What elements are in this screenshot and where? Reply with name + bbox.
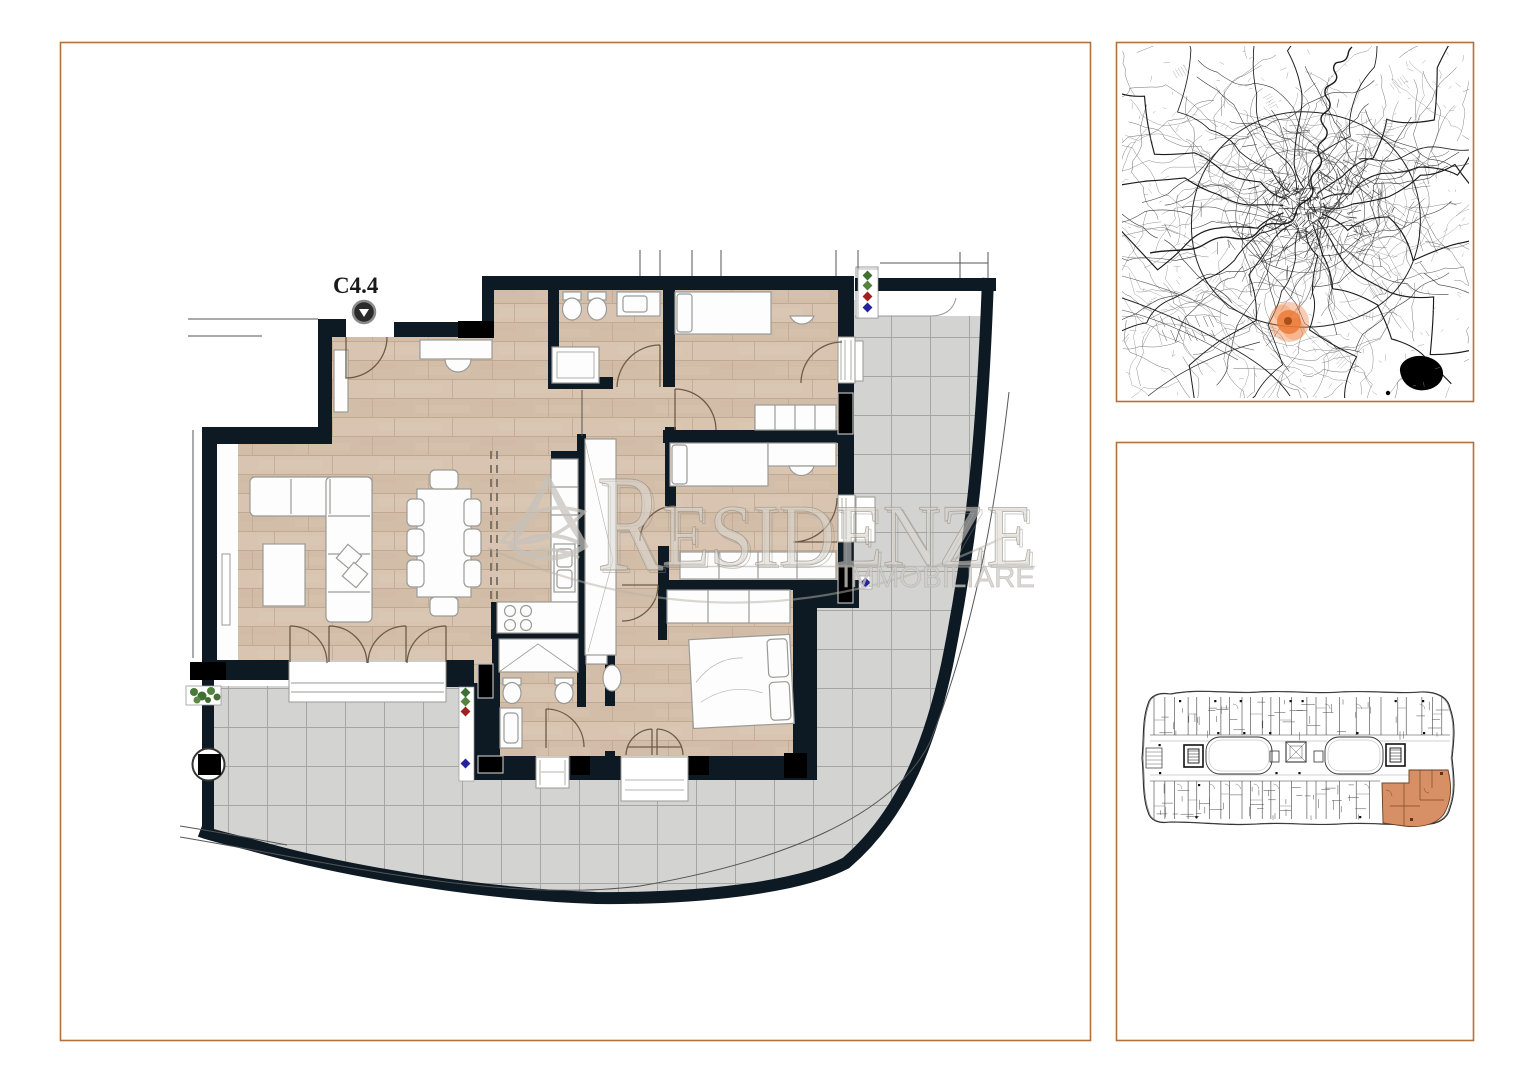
svg-text:R: R xyxy=(597,447,663,601)
svg-text:C4.4: C4.4 xyxy=(333,273,379,298)
svg-text:IMMOBILIARE: IMMOBILIARE xyxy=(842,562,1035,594)
